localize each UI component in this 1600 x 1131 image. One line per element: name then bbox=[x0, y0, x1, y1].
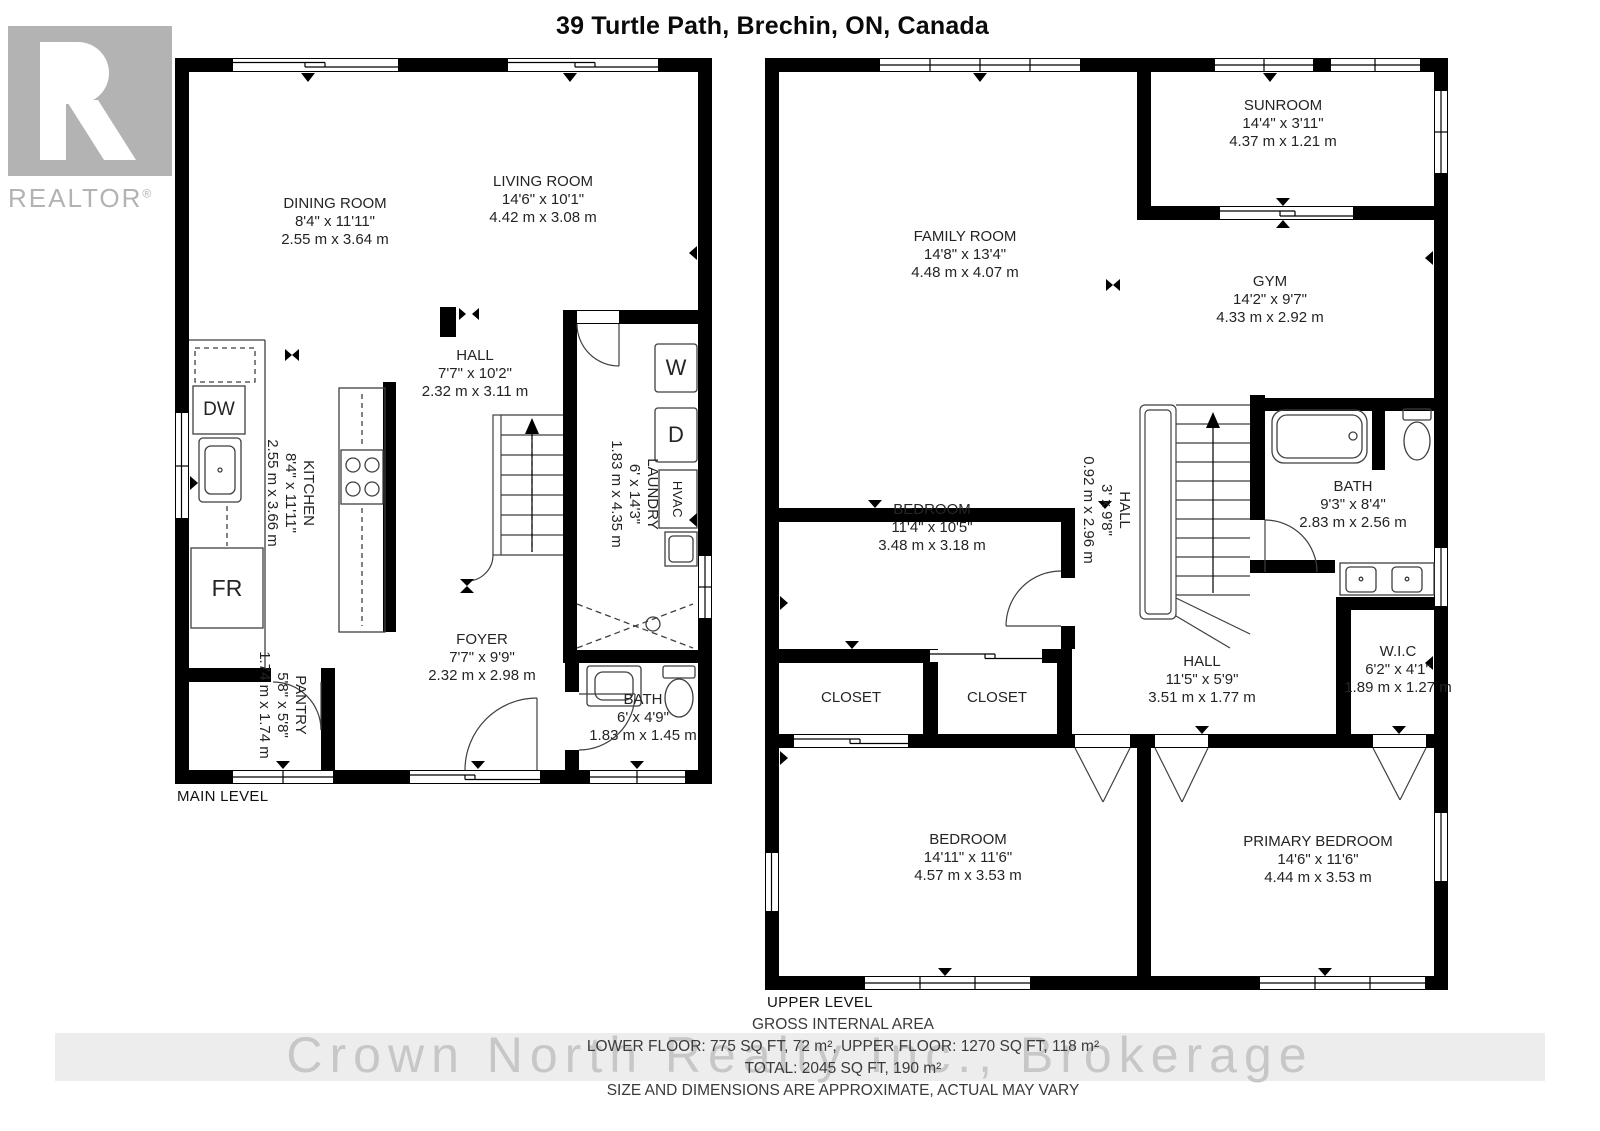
room-dim-imperial: 14'2" x 9'7" bbox=[1170, 291, 1370, 309]
washer-label: W bbox=[655, 344, 697, 392]
room-name: FOYER bbox=[382, 631, 582, 649]
room-dim-metric: 2.55 m x 3.64 m bbox=[235, 231, 435, 249]
room-dim-imperial: 7'7" x 9'9" bbox=[382, 649, 582, 667]
fridge-label: FR bbox=[191, 548, 263, 628]
room-name: PANTRY bbox=[291, 605, 309, 805]
room-label-family: FAMILY ROOM 14'8" x 13'4" 4.48 m x 4.07 … bbox=[865, 228, 1065, 282]
room-dim-imperial: 8'4" x 11'11" bbox=[281, 393, 299, 593]
room-label-hall-main: HALL 7'7" x 10'2" 2.32 m x 3.11 m bbox=[375, 347, 575, 401]
room-name: FAMILY ROOM bbox=[865, 228, 1065, 246]
room-dim-imperial: 9'3" x 8'4" bbox=[1253, 496, 1453, 514]
room-dim-imperial: 11'5" x 5'9" bbox=[1102, 671, 1302, 689]
room-dim-imperial: 11'4" x 10'5" bbox=[832, 519, 1032, 537]
room-dim-metric: 4.37 m x 1.21 m bbox=[1183, 133, 1383, 151]
room-label-closet1: CLOSET bbox=[781, 689, 921, 707]
room-name: BEDROOM bbox=[868, 831, 1068, 849]
room-label-bath-upper: BATH 9'3" x 8'4" 2.83 m x 2.56 m bbox=[1253, 478, 1453, 532]
footer-area: GROSS INTERNAL AREA LOWER FLOOR: 775 SQ … bbox=[343, 1014, 1343, 1102]
room-dim-metric: 4.44 m x 3.53 m bbox=[1218, 869, 1418, 887]
upper-stairs bbox=[1140, 405, 1250, 648]
room-dim-metric: 2.83 m x 2.56 m bbox=[1253, 514, 1453, 532]
room-name: BEDROOM bbox=[832, 501, 1032, 519]
room-dim-imperial: 14'6" x 11'6" bbox=[1218, 851, 1418, 869]
room-name: DINING ROOM bbox=[235, 195, 435, 213]
room-dim-metric: 4.42 m x 3.08 m bbox=[443, 209, 643, 227]
room-dim-imperial: 3' x 9'8" bbox=[1097, 410, 1115, 610]
main-stairs bbox=[467, 415, 563, 581]
room-dim-metric: 4.57 m x 3.53 m bbox=[868, 867, 1068, 885]
room-dim-metric: 2.32 m x 2.98 m bbox=[382, 667, 582, 685]
room-label-pantry: PANTRY 5'8" x 5'8" 1.74 m x 1.74 m bbox=[253, 605, 309, 805]
room-name: GYM bbox=[1170, 273, 1370, 291]
realtor-logo: REALTOR® bbox=[8, 26, 178, 214]
room-dim-metric: 1.83 m x 1.45 m bbox=[543, 727, 743, 745]
room-dim-imperial: 6' x 14'3" bbox=[625, 394, 643, 594]
room-dim-imperial: 6'2" x 4'1" bbox=[1298, 661, 1498, 679]
room-dim-metric: 1.89 m x 1.27 m bbox=[1298, 679, 1498, 697]
floor-areas: LOWER FLOOR: 775 SQ FT, 72 m², UPPER FLO… bbox=[343, 1036, 1343, 1058]
room-name: HALL bbox=[1115, 410, 1133, 610]
room-name: BATH bbox=[543, 691, 743, 709]
room-dim-imperial: 8'4" x 11'11" bbox=[235, 213, 435, 231]
hvac-label: HVAC bbox=[659, 470, 697, 528]
room-dim-metric: 4.33 m x 2.92 m bbox=[1170, 309, 1370, 327]
room-name: KITCHEN bbox=[299, 393, 317, 593]
room-dim-imperial: 14'6" x 10'1" bbox=[443, 191, 643, 209]
room-label-closet2: CLOSET bbox=[927, 689, 1067, 707]
room-label-hall-upper: HALL 11'5" x 5'9" 3.51 m x 1.77 m bbox=[1102, 653, 1302, 707]
room-label-wic: W.I.C 6'2" x 4'1" 1.89 m x 1.27 m bbox=[1298, 643, 1498, 697]
room-name: CLOSET bbox=[927, 689, 1067, 707]
room-name: CLOSET bbox=[781, 689, 921, 707]
disclaimer: SIZE AND DIMENSIONS ARE APPROXIMATE, ACT… bbox=[343, 1080, 1343, 1102]
room-name: SUNROOM bbox=[1183, 97, 1383, 115]
room-dim-metric: 3.48 m x 3.18 m bbox=[832, 537, 1032, 555]
room-label-primary-bedroom: PRIMARY BEDROOM 14'6" x 11'6" 4.44 m x 3… bbox=[1218, 833, 1418, 887]
room-label-foyer: FOYER 7'7" x 9'9" 2.32 m x 2.98 m bbox=[382, 631, 582, 685]
room-label-gym: GYM 14'2" x 9'7" 4.33 m x 2.92 m bbox=[1170, 273, 1370, 327]
room-label-kitchen: KITCHEN 8'4" x 11'11" 2.55 m x 3.66 m bbox=[261, 393, 317, 593]
room-dim-metric: 2.32 m x 3.11 m bbox=[375, 383, 575, 401]
floorplan-page: 39 Turtle Path, Brechin, ON, Canada REAL… bbox=[0, 0, 1600, 1131]
room-dim-metric: 0.92 m x 2.96 m bbox=[1079, 410, 1097, 610]
room-dim-imperial: 6' x 4'9" bbox=[543, 709, 743, 727]
registered-mark: ® bbox=[142, 186, 153, 200]
room-dim-metric: 3.51 m x 1.77 m bbox=[1102, 689, 1302, 707]
realtor-wordmark: REALTOR bbox=[8, 183, 142, 213]
room-label-bedroom1: BEDROOM 11'4" x 10'5" 3.48 m x 3.18 m bbox=[832, 501, 1032, 555]
room-dim-metric: 1.83 m x 4.35 m bbox=[607, 394, 625, 594]
room-label-dining: DINING ROOM 8'4" x 11'11" 2.55 m x 3.64 … bbox=[235, 195, 435, 249]
room-label-sunroom: SUNROOM 14'4" x 3'11" 4.37 m x 1.21 m bbox=[1183, 97, 1383, 151]
realtor-logo-icon bbox=[8, 26, 172, 176]
room-name: PRIMARY BEDROOM bbox=[1218, 833, 1418, 851]
upper-level-plan: SUNROOM 14'4" x 3'11" 4.37 m x 1.21 m FA… bbox=[765, 58, 1448, 990]
room-label-living: LIVING ROOM 14'6" x 10'1" 4.42 m x 3.08 … bbox=[443, 173, 643, 227]
room-dim-imperial: 14'11" x 11'6" bbox=[868, 849, 1068, 867]
room-name: HALL bbox=[375, 347, 575, 365]
room-dim-imperial: 14'8" x 13'4" bbox=[865, 246, 1065, 264]
dishwasher-label: DW bbox=[193, 386, 245, 434]
page-title: 39 Turtle Path, Brechin, ON, Canada bbox=[0, 12, 1545, 41]
room-name: W.I.C bbox=[1298, 643, 1498, 661]
gross-area-title: GROSS INTERNAL AREA bbox=[343, 1014, 1343, 1036]
room-label-laundry: LAUNDRY 6' x 14'3" 1.83 m x 4.35 m bbox=[605, 394, 661, 594]
main-level-label: MAIN LEVEL bbox=[177, 788, 268, 805]
main-level-plan: DINING ROOM 8'4" x 11'11" 2.55 m x 3.64 … bbox=[175, 58, 712, 784]
room-name: LIVING ROOM bbox=[443, 173, 643, 191]
room-dim-imperial: 5'8" x 5'8" bbox=[273, 605, 291, 805]
room-dim-metric: 1.74 m x 1.74 m bbox=[255, 605, 273, 805]
room-dim-metric: 4.48 m x 4.07 m bbox=[865, 264, 1065, 282]
room-label-bath-main: BATH 6' x 4'9" 1.83 m x 1.45 m bbox=[543, 691, 743, 745]
dryer-label: D bbox=[655, 408, 697, 462]
room-dim-metric: 2.55 m x 3.66 m bbox=[263, 393, 281, 593]
room-name: BATH bbox=[1253, 478, 1453, 496]
realtor-logo-text: REALTOR® bbox=[8, 183, 178, 214]
room-dim-imperial: 14'4" x 3'11" bbox=[1183, 115, 1383, 133]
room-label-hall-upper-small: HALL 3' x 9'8" 0.92 m x 2.96 m bbox=[1077, 410, 1133, 610]
room-dim-imperial: 7'7" x 10'2" bbox=[375, 365, 575, 383]
room-label-bedroom2: BEDROOM 14'11" x 11'6" 4.57 m x 3.53 m bbox=[868, 831, 1068, 885]
total-area: TOTAL: 2045 SQ FT, 190 m² bbox=[343, 1058, 1343, 1080]
room-name: HALL bbox=[1102, 653, 1302, 671]
upper-level-label: UPPER LEVEL bbox=[767, 994, 873, 1011]
